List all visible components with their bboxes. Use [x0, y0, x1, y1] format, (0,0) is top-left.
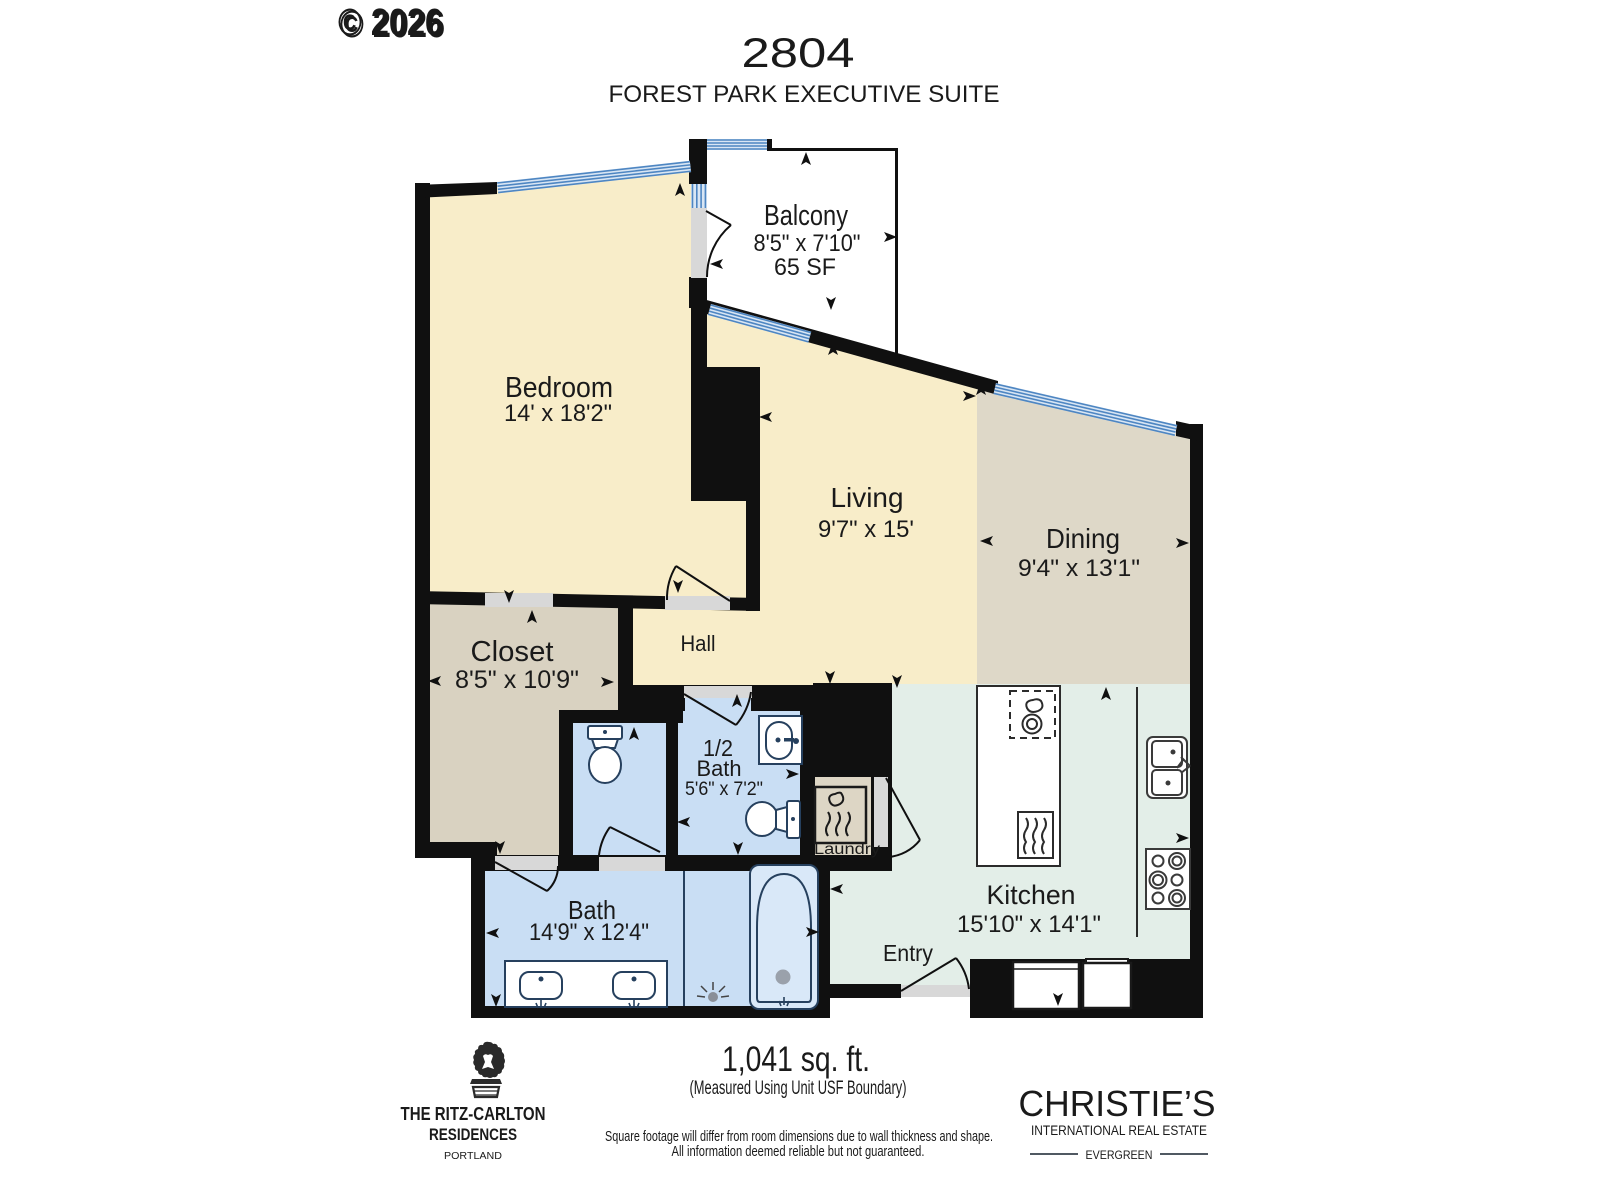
svg-text:8'5" x 10'9": 8'5" x 10'9": [455, 666, 579, 694]
svg-text:9'7" x 15': 9'7" x 15': [818, 516, 914, 543]
svg-text:8'5" x 7'10": 8'5" x 7'10": [754, 230, 861, 257]
svg-text:Closet: Closet: [471, 636, 554, 668]
svg-text:PORTLAND: PORTLAND: [444, 1150, 502, 1162]
svg-text:INTERNATIONAL REAL ESTATE: INTERNATIONAL REAL ESTATE: [1031, 1122, 1207, 1138]
svg-text:Hall: Hall: [681, 631, 716, 656]
svg-text:Balcony: Balcony: [764, 200, 848, 232]
svg-text:14' x 18'2": 14' x 18'2": [504, 400, 612, 427]
svg-text:EVERGREEN: EVERGREEN: [1086, 1148, 1153, 1162]
svg-text:Square footage will differ fro: Square footage will differ from room dim…: [605, 1129, 993, 1145]
svg-text:5'6" x 7'2": 5'6" x 7'2": [685, 779, 763, 800]
svg-text:1,041 sq. ft.: 1,041 sq. ft.: [722, 1040, 870, 1079]
svg-text:FOREST PARK EXECUTIVE SUITE: FOREST PARK EXECUTIVE SUITE: [609, 81, 1000, 108]
svg-text:65 SF: 65 SF: [774, 254, 836, 281]
svg-text:15'10" x 14'1": 15'10" x 14'1": [957, 911, 1101, 938]
svg-text:© 2026: © 2026: [338, 2, 443, 44]
svg-text:THE RITZ-CARLTON: THE RITZ-CARLTON: [401, 1104, 546, 1124]
svg-text:2804: 2804: [742, 29, 855, 76]
svg-text:Kitchen: Kitchen: [987, 880, 1076, 910]
svg-text:(Measured Using Unit USF Bound: (Measured Using Unit USF Boundary): [690, 1078, 907, 1099]
svg-text:14'9" x 12'4": 14'9" x 12'4": [529, 919, 649, 946]
svg-text:RESIDENCES: RESIDENCES: [429, 1125, 517, 1144]
svg-text:CHRISTIE’S: CHRISTIE’S: [1019, 1083, 1216, 1124]
svg-text:All information deemed reliabl: All information deemed reliable but not …: [672, 1144, 925, 1160]
svg-text:Bath: Bath: [697, 756, 742, 781]
svg-text:Laundry: Laundry: [814, 841, 880, 858]
svg-text:Entry: Entry: [883, 940, 933, 966]
svg-text:9'4" x 13'1": 9'4" x 13'1": [1018, 555, 1140, 582]
svg-text:Dining: Dining: [1046, 523, 1120, 554]
svg-text:Living: Living: [831, 482, 904, 513]
